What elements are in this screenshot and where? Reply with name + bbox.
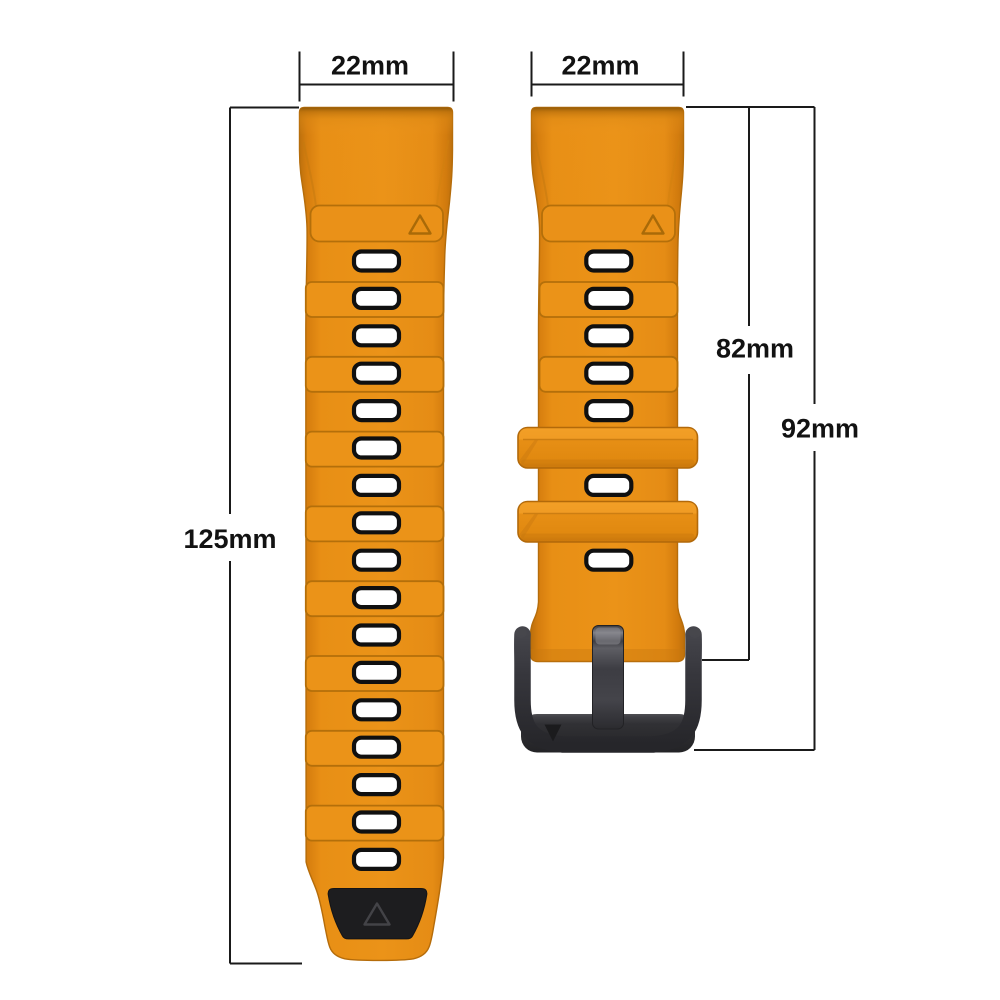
svg-text:22mm: 22mm	[331, 51, 409, 81]
svg-text:22mm: 22mm	[561, 51, 639, 81]
svg-text:82mm: 82mm	[716, 334, 794, 364]
svg-text:92mm: 92mm	[781, 414, 859, 444]
svg-text:125mm: 125mm	[183, 524, 276, 554]
